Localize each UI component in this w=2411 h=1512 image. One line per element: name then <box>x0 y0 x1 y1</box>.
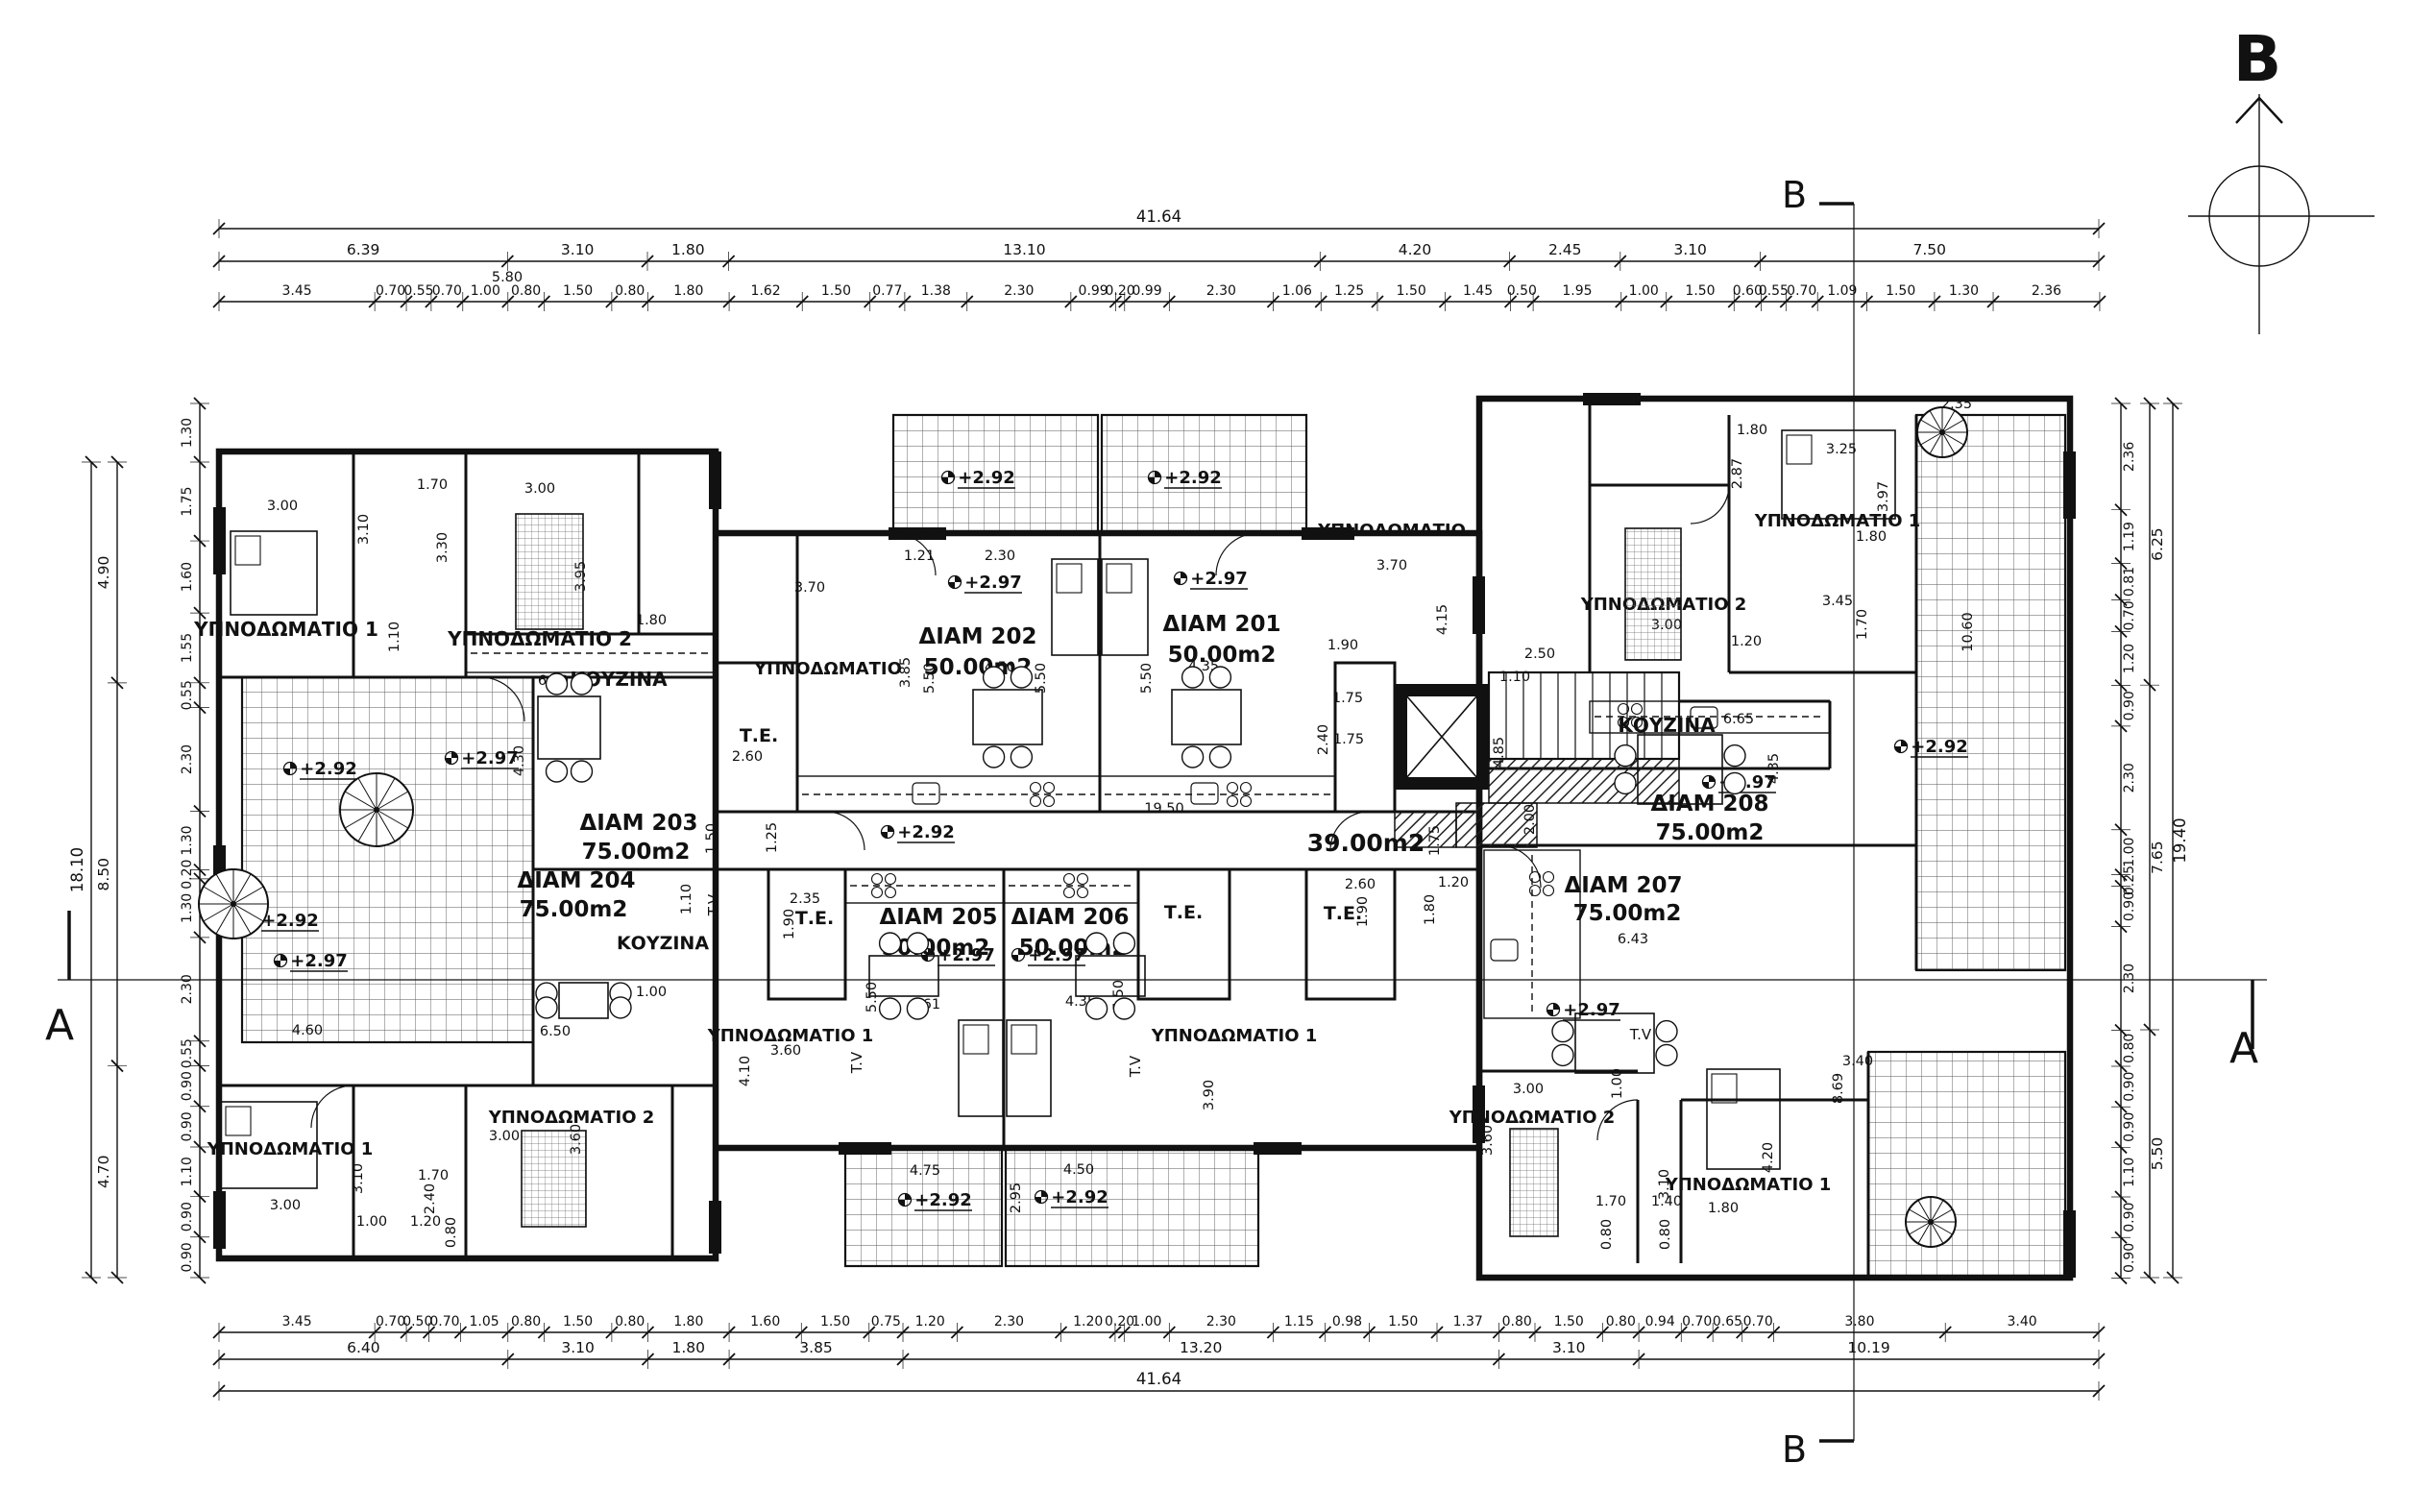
room-label: ΥΠΝΟΔΩΜΑΤΙΟ 2 <box>488 1108 655 1128</box>
pillow <box>1787 435 1812 464</box>
dim-label: 0.90 <box>180 1242 195 1272</box>
dim-label: 13.10 <box>1003 241 1045 258</box>
dim-label: 1.60 <box>750 1314 780 1329</box>
dim-label: 3.00 <box>524 481 555 497</box>
chair <box>1656 1021 1677 1042</box>
room-label: Τ.Ε. <box>1324 903 1362 924</box>
dim-label: 2.87 <box>1730 458 1745 489</box>
dim-label: 41.64 <box>1136 1370 1181 1388</box>
dim-label: 1.70 <box>417 477 448 493</box>
dim-label: 0.98 <box>1332 1314 1362 1329</box>
chair <box>1552 1044 1573 1065</box>
chair <box>1615 772 1636 793</box>
bed <box>522 1131 586 1227</box>
room-label: ΥΠΝΟΔΩΜΑΤΙΟ 2 <box>1449 1108 1616 1128</box>
dim-label: 1.15 <box>1284 1314 1314 1329</box>
level-value: +2.92 <box>897 822 955 842</box>
dim-label: 1.37 <box>1453 1314 1483 1329</box>
spiral-staircase-icon <box>1906 1197 1956 1247</box>
level-value: +2.92 <box>1051 1187 1108 1207</box>
dim-label: 1.50 <box>704 823 719 854</box>
chair <box>536 997 557 1018</box>
dim-label: 1.20 <box>1731 634 1762 649</box>
level-marker: +2.92 <box>1895 737 1969 757</box>
dim-label: 1.10 <box>2122 1158 2137 1187</box>
stove-burner-icon <box>1241 783 1252 793</box>
dim-label: 7.50 <box>1912 241 1946 258</box>
chair <box>1011 667 1032 688</box>
dim-label: 6.43 <box>1618 932 1648 947</box>
dim-label: 2.36 <box>2122 442 2137 472</box>
dim-label: 3.85 <box>799 1339 833 1356</box>
dim-label: 6.25 <box>2149 527 2166 561</box>
dim-label: 1.00 <box>471 283 500 299</box>
dim-label: 1.05 <box>470 1314 499 1329</box>
dim-label: 3.25 <box>1826 442 1857 457</box>
stove-burner-icon <box>1064 888 1075 898</box>
level-value: +2.97 <box>290 951 348 971</box>
bed <box>516 514 583 629</box>
room-label: ΥΠΝΟΔΩΜΑΤΙΟ 2 <box>447 627 632 650</box>
dim-label: 0.55 <box>180 680 195 710</box>
dim-label: 0.75 <box>871 1314 901 1329</box>
dim-label: 1.00 <box>356 1214 387 1230</box>
spiral-staircase-icon <box>199 869 268 939</box>
room-label: ΥΠΝΟΔΩΜΑΤΙΟ 1 <box>1151 1026 1318 1046</box>
dim-label: 0.80 <box>1502 1314 1532 1329</box>
pillow <box>963 1025 988 1054</box>
chair <box>880 933 901 954</box>
dim-label: 0.70 <box>1787 283 1816 299</box>
bed <box>1052 559 1098 655</box>
dim-label: 5.50 <box>1139 663 1155 694</box>
dim-label: 1.00 <box>1629 283 1659 299</box>
dim-label: 1.70 <box>1855 609 1870 640</box>
dim-label: 2.60 <box>1345 877 1376 892</box>
dim-label: 5.50 <box>2149 1137 2166 1171</box>
dim-label: 0.80 <box>511 1314 541 1329</box>
dim-label: 3.70 <box>1376 558 1407 573</box>
level-value: +2.92 <box>1911 737 1968 757</box>
dim-label: 2.30 <box>180 744 195 774</box>
dim-label: 0.90 <box>2122 1112 2137 1142</box>
room-label: ΔΙΑΜ 206 <box>1011 905 1129 930</box>
room-label: T.V <box>1127 1055 1144 1078</box>
dim-label: 8.50 <box>95 858 112 891</box>
dim-label: 1.20 <box>2122 644 2137 673</box>
dim-label: 10.60 <box>1960 612 1976 652</box>
dim-label: 0.80 <box>1606 1314 1636 1329</box>
stove-burner-icon <box>1544 872 1554 883</box>
room-label: ΥΠΝΟΔΩΜΑΤΙΟ <box>1317 521 1466 541</box>
section-line-b <box>1819 204 1854 1441</box>
room-label: ΔΙΑΜ 201 <box>1162 612 1280 637</box>
dim-label: 0.90 <box>180 1111 195 1141</box>
dim-label: 1.75 <box>1427 825 1443 856</box>
dim-label: 0.50 <box>1507 283 1537 299</box>
room-label: T.V <box>705 893 722 916</box>
dim-label: 0.80 <box>1599 1219 1615 1250</box>
level-marker: +2.92 <box>882 822 956 842</box>
dim-label: 1.60 <box>180 562 195 592</box>
chair <box>572 761 593 782</box>
dim-label: 1.80 <box>1737 423 1767 438</box>
dim-label: 3.45 <box>281 1314 311 1329</box>
pillow <box>1057 564 1082 593</box>
section-letter: A <box>45 1001 74 1050</box>
dim-label: 2.30 <box>2122 963 2137 993</box>
dim-label: 3.30 <box>435 532 451 563</box>
room-label: 39.00m2 <box>1307 829 1425 857</box>
dim-label: 1.30 <box>180 418 195 448</box>
dim-label: 2.50 <box>1524 646 1555 662</box>
dim-label: 0.70 <box>1682 1314 1712 1329</box>
dim-label: 4.50 <box>1063 1162 1094 1178</box>
dim-label: 2.30 <box>985 549 1015 564</box>
sink-icon <box>1191 783 1218 804</box>
dim-label: 4.15 <box>1435 604 1450 635</box>
section-letter: B <box>2233 22 2281 96</box>
section-letter: B <box>1782 1428 1807 1471</box>
dim-label: 4.70 <box>95 1156 112 1189</box>
level-marker: +2.97 <box>949 573 1023 593</box>
dim-label: 1.95 <box>1562 283 1592 299</box>
dim-label: 1.00 <box>636 985 667 1000</box>
dim-label: 0.70 <box>376 283 405 299</box>
stove-burner-icon <box>886 888 896 898</box>
dining-table <box>1575 1013 1654 1073</box>
dim-label: 4.20 <box>1399 241 1432 258</box>
dim-label: 0.94 <box>1645 1314 1675 1329</box>
dim-label: 3.00 <box>1513 1082 1544 1097</box>
dim-label: 1.80 <box>672 1339 706 1356</box>
dim-label: 2.30 <box>994 1314 1024 1329</box>
chair <box>880 998 901 1019</box>
dim-label: 2.95 <box>1009 1183 1024 1213</box>
room-label: 75.00m2 <box>1656 820 1765 845</box>
dim-label: 0.90 <box>2122 1203 2137 1232</box>
room-label: ΥΠΝΟΔΩΜΑΤΙΟ 1 <box>707 1026 874 1046</box>
dim-label: 1.75 <box>180 486 195 516</box>
dim-label: 3.00 <box>489 1129 520 1144</box>
dim-label: 5.80 <box>492 270 523 285</box>
dim-label: 0.50 <box>402 1314 432 1329</box>
dim-label: 2.30 <box>1206 283 1236 299</box>
dim-label: 1.00 <box>1132 1314 1161 1329</box>
room-label: ΥΠΝΟΔΩΜΑΤΙΟ <box>753 659 902 679</box>
stove-burner-icon <box>1530 886 1541 896</box>
dim-label: 1.50 <box>1388 1314 1418 1329</box>
chair <box>547 761 568 782</box>
stove-burner-icon <box>1078 874 1088 885</box>
pillow <box>1107 564 1132 593</box>
dim-label: 0.70 <box>429 1314 459 1329</box>
dim-label: 1.50 <box>1886 283 1915 299</box>
room-label: ΚΟΥΖΙΝΑ <box>617 933 709 954</box>
dim-label: 1.38 <box>921 283 951 299</box>
level-value: +2.92 <box>958 468 1015 488</box>
chair <box>1209 667 1230 688</box>
room-label: ΔΙΑΜ 202 <box>918 624 1036 649</box>
dim-label: 0.90 <box>180 1071 195 1101</box>
dim-label: 1.80 <box>671 241 705 258</box>
dim-label: 0.80 <box>511 283 541 299</box>
chair <box>1552 1021 1573 1042</box>
dim-label: 0.80 <box>1658 1219 1673 1250</box>
room-label: 50.00m2 <box>1168 643 1277 668</box>
dim-label: 1.80 <box>673 1314 703 1329</box>
dim-label: 0.80 <box>444 1217 459 1248</box>
dim-label: 3.10 <box>1552 1339 1586 1356</box>
chair <box>1011 746 1032 768</box>
dim-label: 2.40 <box>423 1183 438 1214</box>
dim-label: 1.70 <box>1595 1194 1626 1209</box>
level-value: +2.92 <box>300 759 357 779</box>
dim-label: 1.21 <box>904 549 935 564</box>
dim-label: 41.64 <box>1136 207 1181 226</box>
dim-label: 1.80 <box>1423 894 1438 925</box>
dim-label: 2.60 <box>732 749 763 765</box>
room-label: T.V <box>848 1051 865 1074</box>
dim-label: 1.25 <box>765 822 780 853</box>
dim-label: 0.90 <box>2122 891 2137 921</box>
dim-label: 0.70 <box>2122 600 2137 630</box>
dim-label: 0.81 <box>2122 567 2137 597</box>
chair <box>1182 667 1204 688</box>
stove-burner-icon <box>1031 783 1041 793</box>
bed <box>1102 559 1148 655</box>
dim-label: 1.10 <box>1499 670 1530 685</box>
dim-label: 0.90 <box>2122 1072 2137 1102</box>
dim-label: 1.75 <box>1333 732 1364 747</box>
dim-label: 0.20 <box>180 860 195 890</box>
dim-label: 2.45 <box>1548 241 1582 258</box>
pillow <box>1011 1025 1036 1054</box>
room-label: Τ.Ε. <box>740 725 778 746</box>
dim-label: 0.90 <box>180 1202 195 1232</box>
dining-table <box>559 983 608 1018</box>
dining-table <box>973 690 1042 744</box>
room-label: 75.00m2 <box>1573 901 1682 926</box>
dim-label: 6.65 <box>1723 712 1754 727</box>
dim-label: 4.10 <box>738 1056 753 1086</box>
stove-burner-icon <box>1078 888 1088 898</box>
dim-label: 3.90 <box>1202 1080 1217 1110</box>
dim-label: 4.85 <box>1492 737 1507 768</box>
level-value: +2.97 <box>1190 569 1248 589</box>
dim-label: 1.50 <box>821 283 851 299</box>
dim-label: 1.30 <box>1949 283 1979 299</box>
dim-label: 1.06 <box>1282 283 1312 299</box>
dim-label: 6.50 <box>540 1024 571 1039</box>
dim-label: 7.65 <box>2149 841 2166 874</box>
dining-table <box>1172 690 1241 744</box>
stove-burner-icon <box>1241 796 1252 807</box>
dim-label: 3.10 <box>561 241 595 258</box>
dining-table <box>1076 956 1145 996</box>
dim-label: 0.99 <box>1132 283 1161 299</box>
chair <box>1724 772 1745 793</box>
sink-icon <box>913 783 939 804</box>
floor-plan-sheet: 41.646.393.101.8013.104.202.453.107.503.… <box>0 0 2411 1512</box>
chair <box>1113 998 1134 1019</box>
chair <box>610 997 631 1018</box>
level-marker: +2.97 <box>1547 1000 1621 1020</box>
dim-label: 3.80 <box>1844 1314 1874 1329</box>
stove-burner-icon <box>1044 783 1055 793</box>
room-label: ΔΙΑΜ 205 <box>879 905 997 930</box>
dim-label: 2.30 <box>1206 1314 1236 1329</box>
dim-label: 1.19 <box>2122 522 2137 551</box>
stove-burner-icon <box>872 874 883 885</box>
dim-label: 3.45 <box>1822 594 1853 609</box>
chair <box>1209 746 1230 768</box>
chair <box>572 673 593 695</box>
dim-label: 3.10 <box>356 514 372 545</box>
stove-burner-icon <box>1228 783 1238 793</box>
dim-label: 1.10 <box>180 1157 195 1186</box>
dim-label: 0.90 <box>2122 1243 2137 1273</box>
dim-label: 1.50 <box>1685 283 1715 299</box>
chair <box>547 673 568 695</box>
dim-label: 3.00 <box>270 1198 301 1213</box>
dim-label: 1.50 <box>563 283 593 299</box>
dim-label: 3.10 <box>351 1163 366 1194</box>
dim-label: 1.20 <box>410 1214 441 1230</box>
dim-label: 19.50 <box>1144 801 1184 817</box>
dim-label: 1.80 <box>636 613 667 628</box>
chair <box>984 746 1005 768</box>
spiral-staircase-icon <box>340 773 413 846</box>
dim-label: 0.70 <box>1743 1314 1773 1329</box>
terrace-southeast <box>1868 1052 2065 1278</box>
chair <box>1615 745 1636 767</box>
dim-label: 6.39 <box>347 241 380 258</box>
floor-plan-svg: 41.646.393.101.8013.104.202.453.107.503.… <box>0 0 2411 1512</box>
dim-label: 6.40 <box>347 1339 380 1356</box>
dim-label: 1.20 <box>1073 1314 1103 1329</box>
dim-label: 3.45 <box>281 283 311 299</box>
section-letter: B <box>1782 174 1807 216</box>
dining-table <box>538 696 600 759</box>
dim-label: 3.40 <box>1842 1054 1873 1069</box>
dim-label: 1.50 <box>820 1314 850 1329</box>
level-value: +2.97 <box>1563 1000 1620 1020</box>
dim-label: 1.10 <box>679 884 694 915</box>
dim-label: 1.90 <box>1327 638 1358 653</box>
dim-label: 2.30 <box>1004 283 1034 299</box>
dim-label: 1.30 <box>180 825 195 855</box>
room-label: 75.00m2 <box>520 897 628 922</box>
dim-label: 4.75 <box>910 1163 940 1179</box>
level-value: +2.92 <box>914 1190 972 1210</box>
dim-label: 0.80 <box>615 1314 645 1329</box>
dim-label: 2.35 <box>790 891 820 907</box>
dim-label: 18.10 <box>68 847 86 892</box>
dim-label: 1.30 <box>180 893 195 923</box>
dim-label: 0.70 <box>432 283 462 299</box>
dim-label: 1.50 <box>1397 283 1426 299</box>
stove-burner-icon <box>1228 796 1238 807</box>
dim-label: 0.55 <box>403 283 433 299</box>
level-value: +2.97 <box>461 748 519 768</box>
dim-label: 8.69 <box>1831 1073 1846 1104</box>
dim-label: 0.25 <box>2122 866 2137 895</box>
dim-label: 0.80 <box>615 283 645 299</box>
room-label: ΥΠΝΟΔΩΜΑΤΙΟ 1 <box>193 618 378 641</box>
chair <box>1113 933 1134 954</box>
north-indicator <box>2188 94 2374 334</box>
dim-label: 1.20 <box>1438 875 1469 890</box>
chair <box>1086 998 1108 1019</box>
dim-label: 3.70 <box>794 580 825 596</box>
dim-label: 2.40 <box>1316 724 1331 755</box>
stove-burner-icon <box>1064 874 1075 885</box>
dim-label: 1.80 <box>1708 1201 1739 1216</box>
dim-label: 0.77 <box>872 283 902 299</box>
chair <box>1656 1044 1677 1065</box>
dim-label: 3.10 <box>561 1339 595 1356</box>
chair <box>907 998 928 1019</box>
level-value: +2.92 <box>1164 468 1222 488</box>
stove-burner-icon <box>1544 886 1554 896</box>
dim-label: 0.90 <box>2122 691 2137 720</box>
bed <box>231 531 317 615</box>
chair <box>984 667 1005 688</box>
room-label: 75.00m2 <box>582 840 691 865</box>
dim-label: 1.70 <box>418 1168 449 1183</box>
dim-label: 1.00 <box>2122 838 2137 867</box>
chair <box>1086 933 1108 954</box>
level-value: +2.97 <box>938 945 995 965</box>
dim-label: 2.30 <box>2122 763 2137 793</box>
dim-label: 1.55 <box>180 633 195 663</box>
room-label: ΔΙΑΜ 204 <box>517 868 635 893</box>
stove-burner-icon <box>886 874 896 885</box>
spiral-staircase-icon <box>1917 407 1967 457</box>
dim-label: 1.45 <box>1463 283 1493 299</box>
terrace-west <box>242 677 533 1042</box>
chair <box>1724 745 1745 767</box>
pillow <box>235 536 260 565</box>
level-marker: +2.97 <box>1175 569 1249 589</box>
dim-label: 1.80 <box>1856 529 1887 545</box>
pillow <box>226 1107 251 1135</box>
stove-burner-icon <box>1044 796 1055 807</box>
bed <box>1007 1020 1051 1116</box>
dim-label: 13.20 <box>1180 1339 1222 1356</box>
dim-label: 0.70 <box>376 1314 405 1329</box>
dim-label: 2.30 <box>180 974 195 1004</box>
level-value: +2.92 <box>261 911 319 931</box>
stove-burner-icon <box>1530 872 1541 883</box>
dim-label: 3.97 <box>1876 481 1891 512</box>
dim-label: 0.80 <box>2122 1034 2137 1063</box>
dim-label: 1.80 <box>673 283 703 299</box>
dim-label: 0.99 <box>1079 283 1108 299</box>
dim-label: 3.40 <box>2008 1314 2037 1329</box>
balcony-bottom-right <box>1006 1148 1258 1266</box>
dim-label: 19.40 <box>2171 817 2189 863</box>
dim-label: 4.90 <box>95 556 112 590</box>
dim-label: 1.20 <box>915 1314 945 1329</box>
dim-label: 4.60 <box>292 1023 323 1038</box>
bed <box>959 1020 1003 1116</box>
room-label: ΥΠΝΟΔΩΜΑΤΙΟ 1 <box>207 1139 374 1159</box>
dim-label: 2.36 <box>2032 283 2061 299</box>
dim-label: 1.50 <box>563 1314 593 1329</box>
dim-label: 1.10 <box>387 622 402 652</box>
